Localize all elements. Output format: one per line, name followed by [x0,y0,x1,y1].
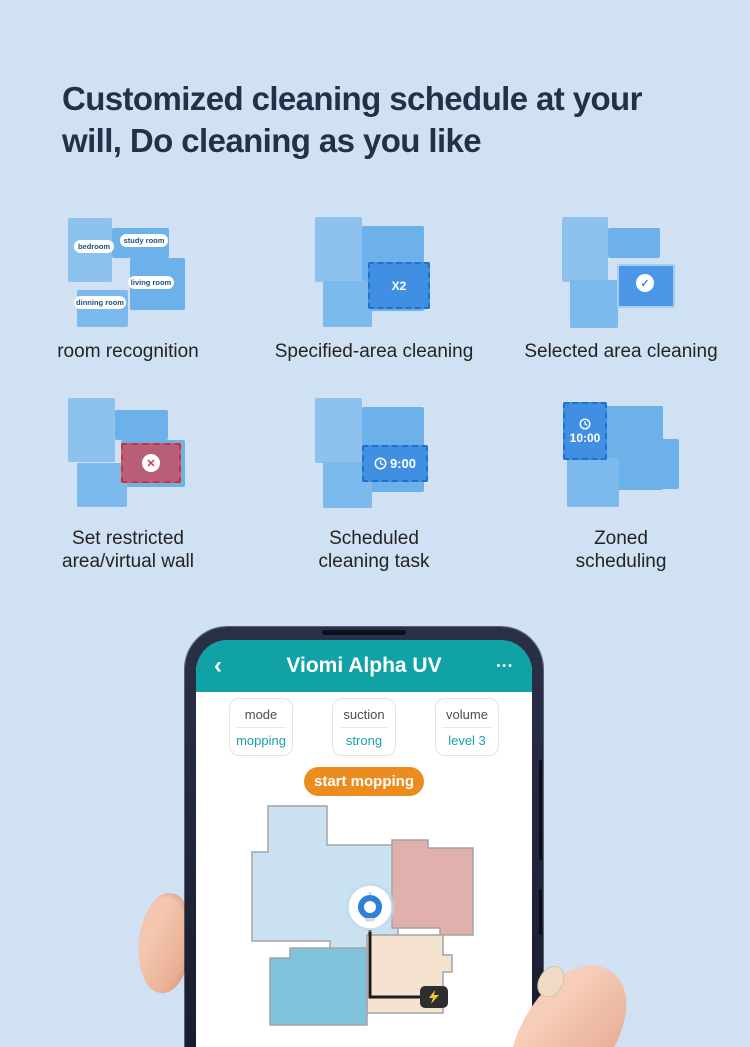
phone-power-button [539,889,542,935]
control-cards: mode mopping suction strong volume level… [196,698,532,756]
cross-glyph: ✕ [146,457,155,470]
phone-speaker-notch [322,630,406,635]
feature-selected-area: ✓ Selected area cleaning [499,205,743,363]
map-room-rect [662,439,679,489]
start-mopping-button[interactable]: start mopping [304,767,424,796]
room-label-living: living room [128,276,174,289]
feature-restricted-area: ✕ Set restricted area/virtual wall [6,392,250,573]
card-divider [339,727,389,728]
ellipsis-menu-icon[interactable]: ••• [490,660,514,672]
card-divider [442,727,492,728]
promo-page: Customized cleaning schedule at your wil… [0,0,750,1047]
card-label: volume [446,707,488,722]
map-room-rect [68,398,115,462]
schedule-time: 9:00 [390,456,416,471]
times-two-badge: X2 [392,279,407,293]
check-icon: ✓ [636,274,654,292]
map-room-rect [570,280,618,328]
feature-scheduled-cleaning: 9:00 Scheduled cleaning task [252,392,496,573]
feature-zoned-scheduling: 10:00 Zoned scheduling [499,392,743,573]
charging-dock-icon [420,986,448,1008]
specified-area-box: X2 [368,262,430,309]
cross-icon: ✕ [142,454,160,472]
schedule-time-box: 9:00 [362,445,428,482]
card-label: suction [343,707,384,722]
zoned-time: 10:00 [570,431,601,445]
map-illustration: ✕ [28,392,228,520]
card-divider [236,727,286,728]
feature-specified-area: X2 Specified-area cleaning [252,205,496,363]
map-illustration: X2 [274,205,474,333]
map-illustration: 10:00 [521,392,721,520]
card-label: mode [245,707,278,722]
room-label-bedroom: bedroom [74,240,114,253]
floor-room-teal [270,948,367,1025]
feature-caption: Zoned scheduling [499,527,743,573]
app-title: Viomi Alpha UV [238,654,490,678]
control-card-volume[interactable]: volume level 3 [435,698,499,756]
feature-caption: Specified-area cleaning [252,340,496,363]
map-room-rect [608,228,660,258]
feature-caption: Set restricted area/virtual wall [6,527,250,573]
clock-icon [374,457,387,470]
map-room-rect [315,398,362,463]
feature-caption: Scheduled cleaning task [252,527,496,573]
phone-screen: ‹ Viomi Alpha UV ••• mode mopping suctio… [196,640,532,1047]
map-room-rect [315,217,362,282]
clock-icon [579,418,591,430]
map-room-rect [562,217,608,282]
feature-room-recognition: bedroom study room living room dinning r… [6,205,250,363]
zoned-time-box: 10:00 [563,402,607,460]
floor-room-pink [392,840,473,935]
room-label-study: study room [120,234,168,247]
feature-caption: Selected area cleaning [499,340,743,363]
phone-mockup: ‹ Viomi Alpha UV ••• mode mopping suctio… [185,627,543,1047]
map-room-rect [567,458,619,507]
card-value: mopping [236,733,286,748]
map-illustration: bedroom study room living room dinning r… [28,205,228,333]
robot-vacuum-icon[interactable] [345,882,395,932]
card-value: strong [346,733,382,748]
back-chevron-icon[interactable]: ‹ [214,654,238,678]
page-title: Customized cleaning schedule at your wil… [62,78,702,162]
card-value: level 3 [448,733,486,748]
control-card-suction[interactable]: suction strong [332,698,396,756]
control-card-mode[interactable]: mode mopping [229,698,293,756]
feature-caption: room recognition [6,340,250,363]
map-room-rect [77,463,127,507]
phone-volume-button [539,760,542,860]
room-label-dinning: dinning room [74,296,126,309]
map-illustration: ✓ [521,205,721,333]
map-room-rect [115,410,168,440]
check-glyph: ✓ [640,277,649,290]
app-header: ‹ Viomi Alpha UV ••• [196,640,532,692]
map-room-rect [323,281,372,327]
floor-map [246,797,478,1047]
map-illustration: 9:00 [274,392,474,520]
